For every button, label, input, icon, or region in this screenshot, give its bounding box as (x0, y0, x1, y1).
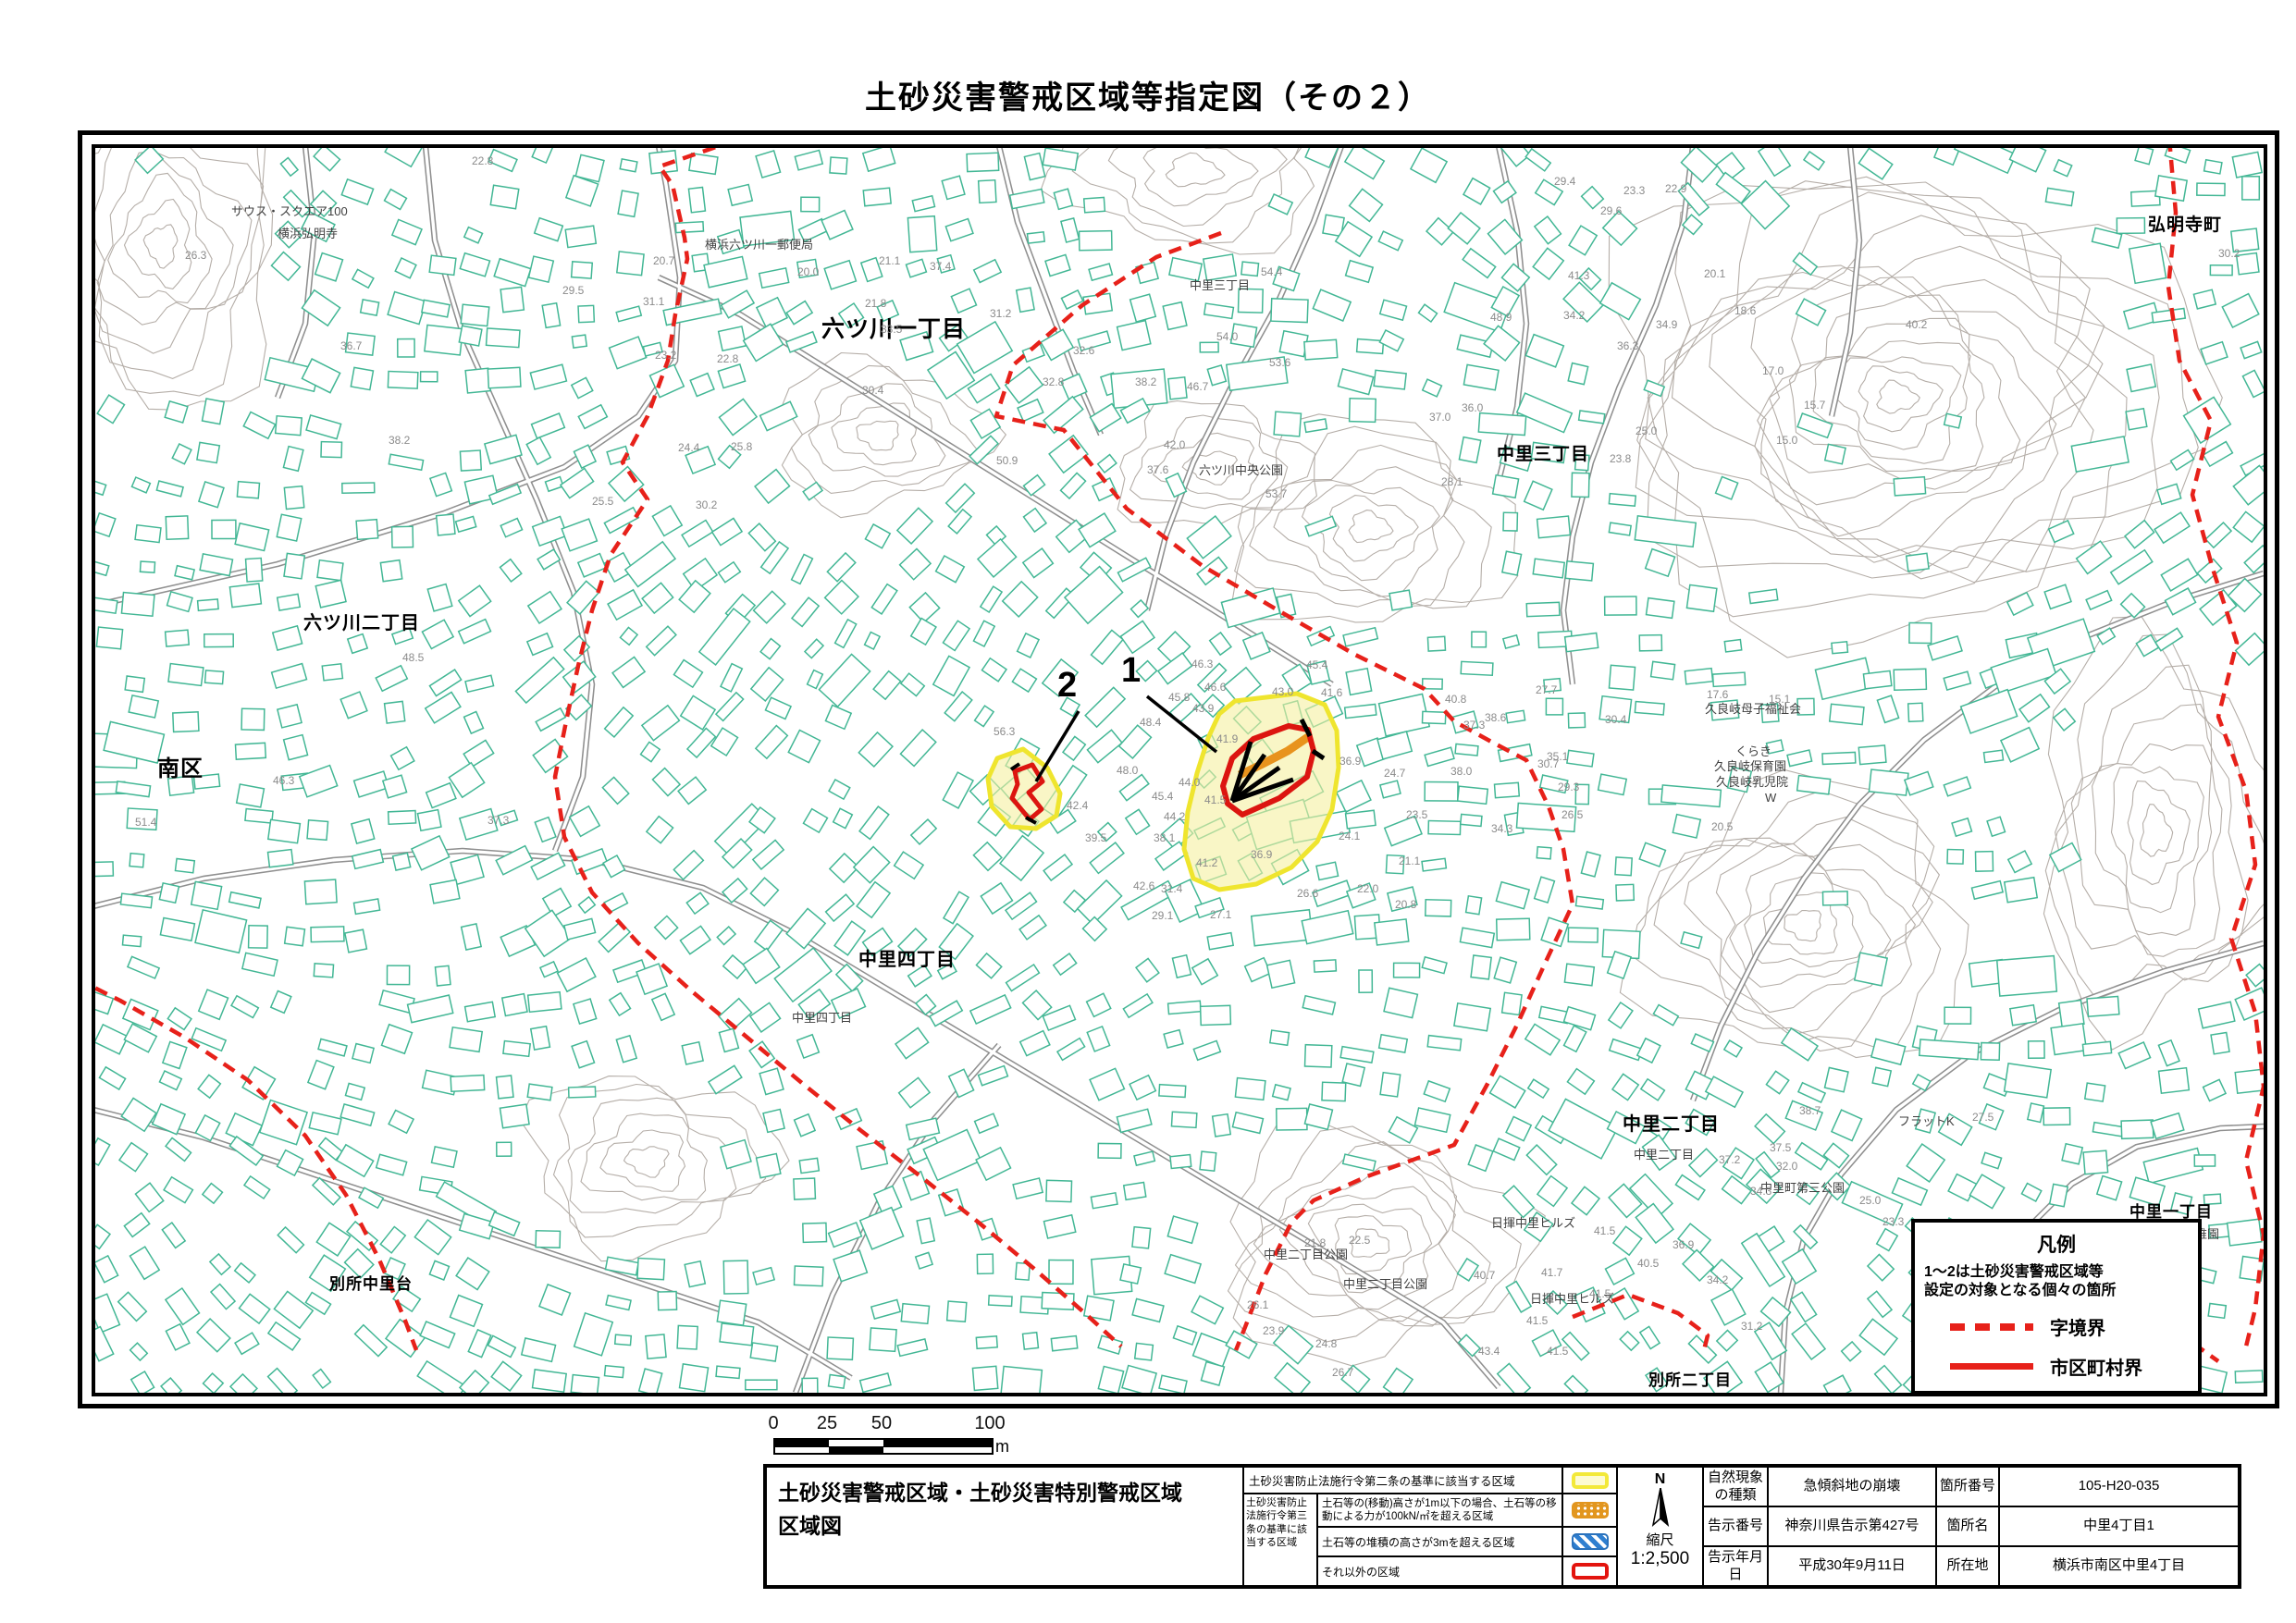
map-legend-box: 凡例 1～2は土砂災害警戒区域等 設定の対象となる個々の箇所 字境界 市区町村界 (1911, 1219, 2202, 1395)
scale-ratio-value: 1:2,500 (1631, 1549, 1689, 1569)
scale-tick: 25 (817, 1413, 837, 1434)
info-title-line2: 区域図 (778, 1514, 842, 1538)
blue-zone-swatch-icon (1572, 1533, 1609, 1550)
field-label: 箇所名 (1936, 1506, 1999, 1546)
field-value: 横浜市南区中里4丁目 (1999, 1546, 2239, 1586)
legend-note-line2: 設定の対象となる個々の箇所 (1924, 1282, 2189, 1300)
info-table: 土砂災害警戒区域・土砂災害特別警戒区域 区域図 土砂災害防止法施行令第二条の基準… (763, 1464, 2241, 1589)
map-frame-inner (92, 144, 2267, 1396)
scale-bar-graphic (773, 1438, 994, 1455)
scale-tick: 100 (974, 1413, 1005, 1434)
swatch-cell (1562, 1467, 1617, 1494)
swatch-cell (1562, 1527, 1617, 1556)
info-title-line1: 土砂災害警戒区域・土砂災害特別警戒区域 (778, 1481, 1182, 1505)
field-label: 告示番号 (1703, 1506, 1768, 1546)
north-arrow-icon (1650, 1488, 1671, 1527)
field-label: 告示年月日 (1703, 1546, 1768, 1586)
legend-row2-desc: 土石等の(移動)高さが1m以下の場合、土石等の移動による力が100kN/㎡を超え… (1317, 1494, 1562, 1527)
field-value: 105-H20-035 (1999, 1467, 2239, 1506)
legend-item-aza-boundary: 字境界 (1924, 1313, 2189, 1340)
red-zone-swatch-icon (1572, 1563, 1609, 1580)
legend-row3-desc: 土石等の堆積の高さが3mを超える区域 (1317, 1527, 1562, 1556)
red-solid-line-icon (1950, 1363, 2033, 1370)
legend-item-label: 市区町村界 (2050, 1353, 2142, 1380)
scale-unit: m (995, 1437, 1009, 1457)
scale-bar: 0 25 50 100 m (759, 1413, 1036, 1463)
field-value: 神奈川県告示第427号 (1768, 1506, 1936, 1546)
field-label: 自然現象の種類 (1703, 1467, 1768, 1506)
legend-note-line1: 1～2は土砂災害警戒区域等 (1924, 1263, 2189, 1282)
scale-tick: 0 (768, 1413, 778, 1434)
swatch-cell (1562, 1556, 1617, 1586)
north-scale-cell: N 縮尺 1:2,500 (1617, 1467, 1703, 1586)
legend-row4-desc: それ以外の区域 (1317, 1556, 1562, 1586)
field-value: 急傾斜地の崩壊 (1768, 1467, 1936, 1506)
field-label: 所在地 (1936, 1546, 1999, 1586)
yellow-zone-swatch-icon (1572, 1472, 1609, 1489)
swatch-cell (1562, 1494, 1617, 1527)
legend-item-label: 字境界 (2050, 1313, 2105, 1340)
field-value: 中里4丁目1 (1999, 1506, 2239, 1546)
legend-title: 凡例 (1924, 1230, 2189, 1258)
info-table-title: 土砂災害警戒区域・土砂災害特別警戒区域 区域図 (766, 1467, 1243, 1586)
orange-zone-swatch-icon (1572, 1502, 1609, 1518)
scale-tick: 50 (871, 1413, 892, 1434)
field-label: 箇所番号 (1936, 1467, 1999, 1506)
scale-ratio-label: 縮尺 (1646, 1530, 1673, 1549)
page: 土砂災害警戒区域等指定図（その２） 六ツ川一丁目六ツ川二丁目南区中里三丁目弘明寺… (0, 0, 2296, 1623)
legend-item-municipal-boundary: 市区町村界 (1924, 1353, 2189, 1380)
legend-scope: 土砂災害防止法施行令第三条の基準に該当する区域 (1243, 1494, 1317, 1586)
legend-row1-desc: 土砂災害防止法施行令第二条の基準に該当する区域 (1243, 1467, 1562, 1494)
red-dashed-line-icon (1950, 1323, 2033, 1331)
field-value: 平成30年9月11日 (1768, 1546, 1936, 1586)
north-label: N (1655, 1471, 1666, 1488)
